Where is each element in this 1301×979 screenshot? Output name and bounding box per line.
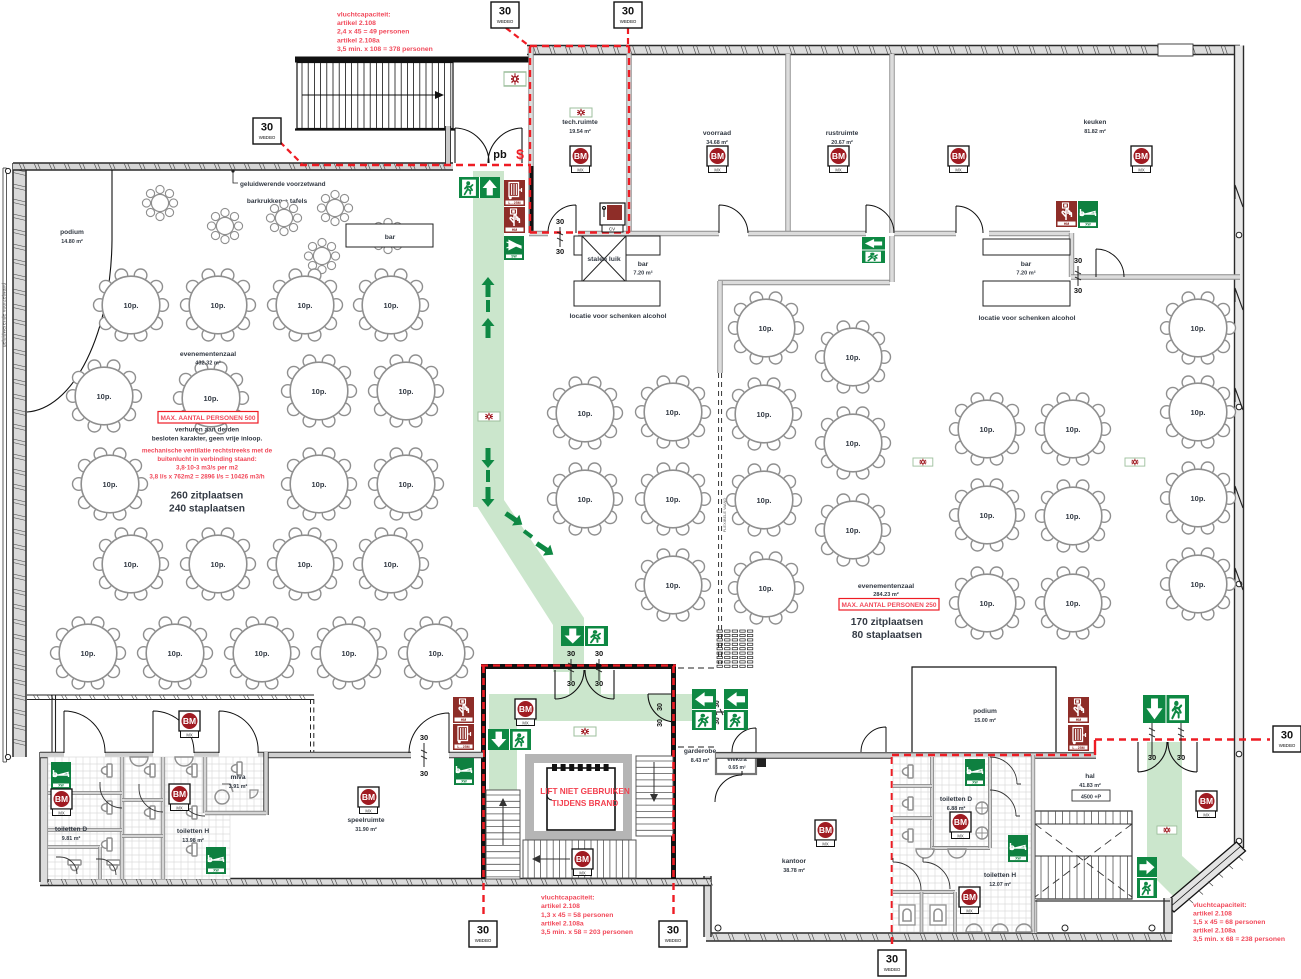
svg-text:geluidwerende voorzetwand: geluidwerende voorzetwand — [240, 181, 326, 188]
svg-text:81.82 m²: 81.82 m² — [1084, 129, 1106, 135]
svg-text:31.90 m²: 31.90 m² — [355, 827, 377, 833]
svg-text:miva: miva — [230, 774, 245, 781]
svg-text:6.88 m²: 6.88 m² — [947, 806, 966, 812]
svg-text:vluchtcapaciteit:: vluchtcapaciteit: — [541, 894, 595, 901]
svg-text:artikel 2.108: artikel 2.108 — [541, 903, 580, 910]
svg-text:0.65 m²: 0.65 m² — [728, 765, 746, 771]
svg-text:locatie voor schenken alcohol: locatie voor schenken alcohol — [569, 313, 666, 320]
svg-text:buitenlucht in verbinding staa: buitenlucht in verbinding staand: — [157, 456, 256, 463]
svg-text:CV: CV — [609, 227, 615, 232]
svg-text:artikel 2.108: artikel 2.108 — [337, 20, 376, 27]
svg-text:3,5 min. x 58 = 203 personen: 3,5 min. x 58 = 203 personen — [541, 929, 633, 936]
svg-text:stalen luik: stalen luik — [587, 256, 620, 263]
svg-text:pb: pb — [493, 149, 507, 161]
svg-text:12.07 m²: 12.07 m² — [989, 882, 1011, 888]
svg-text:80 staplaatsen: 80 staplaatsen — [852, 630, 922, 641]
svg-text:30: 30 — [1074, 256, 1082, 265]
svg-text:41.83 m²: 41.83 m² — [1079, 783, 1101, 789]
svg-text:9.81 m²: 9.81 m² — [62, 836, 81, 842]
svg-text:30: 30 — [420, 733, 428, 742]
svg-text:bar: bar — [1021, 261, 1032, 268]
svg-text:20.67 m²: 20.67 m² — [831, 140, 853, 146]
svg-text:432.32 m²: 432.32 m² — [195, 360, 221, 367]
svg-text:podium: podium — [60, 229, 84, 236]
svg-text:bar: bar — [385, 234, 396, 241]
svg-text:3.91 m²: 3.91 m² — [229, 784, 248, 790]
svg-text:toiletten H: toiletten H — [177, 828, 209, 835]
svg-text:artikel 2.108a: artikel 2.108a — [1193, 927, 1236, 934]
svg-text:MAX. AANTAL PERSONEN 500: MAX. AANTAL PERSONEN 500 — [161, 415, 256, 422]
svg-text:38.78 m²: 38.78 m² — [783, 868, 805, 874]
svg-text:3,8·10-3 m3/s per m2: 3,8·10-3 m3/s per m2 — [176, 465, 238, 472]
svg-text:14.80 m²: 14.80 m² — [61, 239, 83, 245]
svg-text:mechanische ventilatie rechtst: mechanische ventilatie rechtstreeks met … — [142, 448, 273, 455]
svg-text:FLEXIBELE WAND: FLEXIBELE WAND — [722, 498, 727, 533]
svg-text:LIFT NIET GEBRUIKEN: LIFT NIET GEBRUIKEN — [540, 787, 630, 796]
svg-text:2,4 x 45 = 49 personen: 2,4 x 45 = 49 personen — [337, 29, 409, 36]
svg-text:keuken: keuken — [1084, 119, 1107, 126]
svg-text:kantoor: kantoor — [782, 858, 807, 865]
svg-text:toiletten D: toiletten D — [940, 796, 972, 803]
svg-text:13.98 m²: 13.98 m² — [182, 838, 204, 844]
svg-text:19.54 m²: 19.54 m² — [569, 129, 591, 135]
svg-text:artikel 2.108a: artikel 2.108a — [337, 37, 380, 44]
svg-text:3,8 l/s x 762m2 = 2896 l/s = 1: 3,8 l/s x 762m2 = 2896 l/s = 10426 m3/h — [149, 473, 264, 480]
svg-text:toiletten H: toiletten H — [984, 872, 1016, 879]
svg-text:podium: podium — [973, 708, 997, 715]
svg-text:vluchtcapaciteit:: vluchtcapaciteit: — [337, 12, 391, 19]
svg-text:bar: bar — [638, 261, 649, 268]
svg-text:barkrukken + tafels: barkrukken + tafels — [247, 198, 308, 205]
svg-text:34.68 m²: 34.68 m² — [706, 140, 728, 146]
svg-text:besloten karakter, geen vrije: besloten karakter, geen vrije inloop. — [152, 436, 263, 443]
svg-text:1,5 x 45 = 68 personen: 1,5 x 45 = 68 personen — [1193, 919, 1265, 926]
svg-text:voorraad: voorraad — [703, 130, 731, 137]
svg-text:verhuren aan derden: verhuren aan derden — [175, 427, 239, 434]
svg-text:30: 30 — [420, 769, 428, 778]
svg-text:7.20 m²: 7.20 m² — [633, 270, 652, 277]
svg-text:260 zitplaatsen: 260 zitplaatsen — [171, 491, 243, 502]
svg-text:7.20 m²: 7.20 m² — [1016, 270, 1035, 277]
svg-text:evenementenzaal: evenementenzaal — [180, 351, 236, 358]
svg-text:vluchtcapaciteit:: vluchtcapaciteit: — [1193, 902, 1247, 909]
svg-text:locatie voor schenken alcohol: locatie voor schenken alcohol — [978, 315, 1075, 322]
svg-text:30: 30 — [556, 247, 564, 256]
svg-text:garderobe: garderobe — [684, 748, 717, 755]
svg-text:geluidwerende voorzetwand: geluidwerende voorzetwand — [2, 283, 8, 348]
svg-text:toiletten D: toiletten D — [55, 826, 87, 833]
svg-text:artikel 2.108a: artikel 2.108a — [541, 921, 584, 928]
svg-text:284.23 m²: 284.23 m² — [873, 591, 899, 598]
svg-text:artikel 2.108: artikel 2.108 — [1193, 911, 1232, 918]
svg-text:3,5 min. x 108 = 378 personen: 3,5 min. x 108 = 378 personen — [337, 46, 433, 53]
svg-text:TIJDENS BRAND: TIJDENS BRAND — [552, 799, 619, 808]
svg-text:30: 30 — [556, 217, 564, 226]
svg-text:8.43 m²: 8.43 m² — [691, 758, 710, 764]
svg-text:30: 30 — [1074, 286, 1082, 295]
svg-text:30: 30 — [657, 703, 664, 711]
svg-text:30: 30 — [567, 649, 575, 658]
svg-text:MAX. AANTAL PERSONEN 250: MAX. AANTAL PERSONEN 250 — [842, 602, 937, 609]
svg-text:30: 30 — [657, 719, 664, 727]
svg-text:1,3 x 45 = 58 personen: 1,3 x 45 = 58 personen — [541, 912, 613, 919]
svg-text:evenementenzaal: evenementenzaal — [858, 583, 914, 590]
svg-text:$: $ — [516, 146, 524, 162]
svg-text:15.00 m²: 15.00 m² — [974, 718, 996, 724]
svg-text:speelruimte: speelruimte — [347, 817, 384, 824]
svg-text:4500 +P: 4500 +P — [1081, 795, 1102, 801]
svg-text:30: 30 — [595, 649, 603, 658]
svg-text:170 zitplaatsen: 170 zitplaatsen — [851, 617, 923, 628]
svg-text:hal: hal — [1085, 773, 1095, 780]
svg-text:tech.ruimte: tech.ruimte — [562, 119, 598, 126]
svg-text:240 staplaatsen: 240 staplaatsen — [169, 504, 245, 515]
svg-text:3,5 min. x 68 = 238 personen: 3,5 min. x 68 = 238 personen — [1193, 936, 1285, 943]
svg-text:rustruimte: rustruimte — [826, 130, 859, 137]
